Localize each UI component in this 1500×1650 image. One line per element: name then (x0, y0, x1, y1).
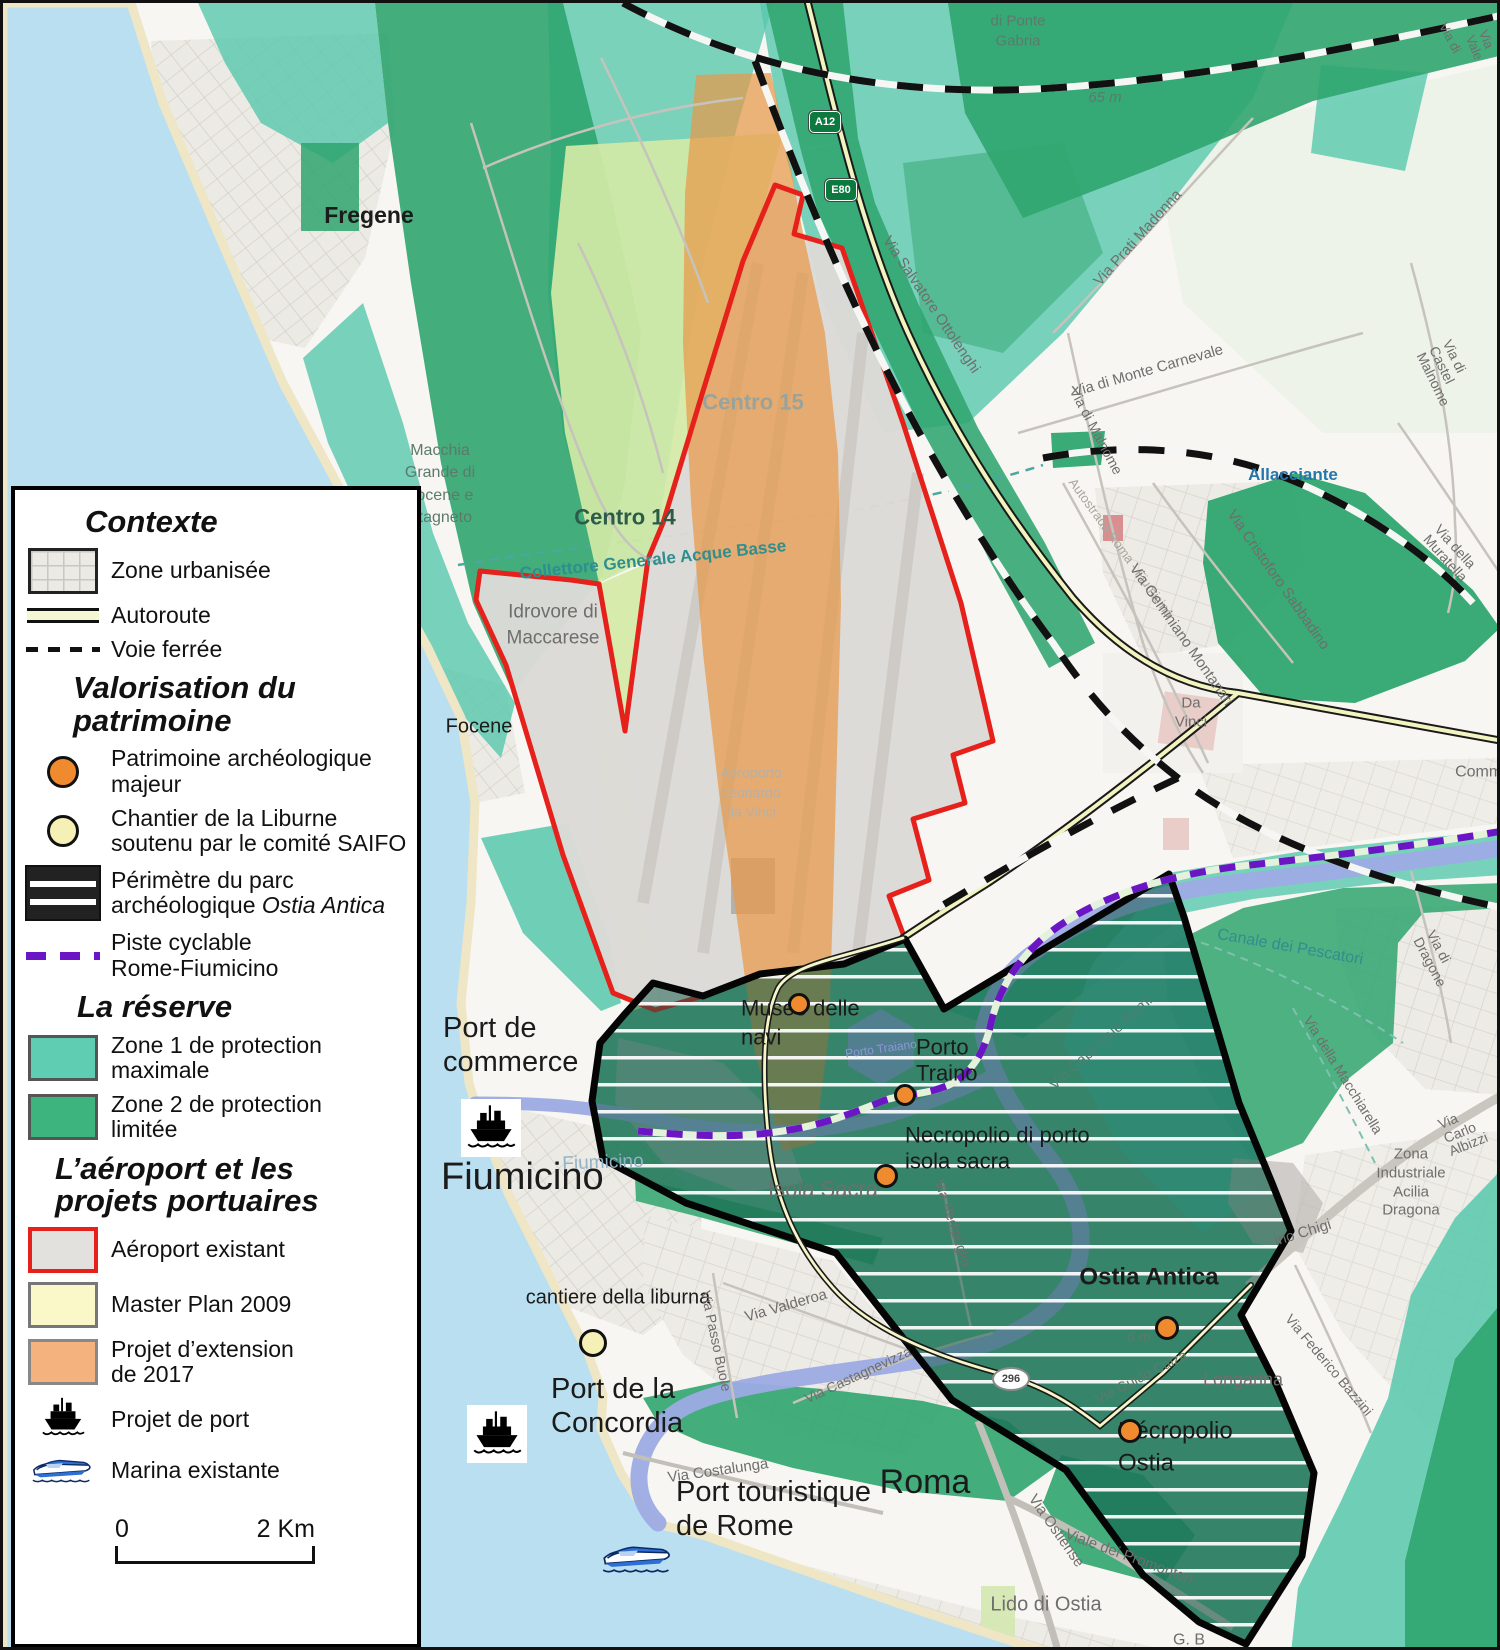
legend-item: Aéroport existant (15, 1227, 417, 1273)
park-swatch (25, 865, 101, 921)
legend-item: Patrimoine archéologique majeur (15, 746, 417, 797)
map-label: Via Prati Madonna (1091, 187, 1185, 289)
legend-item-label: Autoroute (111, 603, 211, 628)
map-label: Via di Castel Malnome (1414, 337, 1479, 408)
map-label: Roma (880, 1465, 971, 1501)
marker-cantiere-liburna (579, 1329, 607, 1357)
map-label: Via della Macchiarella (1301, 1013, 1385, 1136)
map-label: Da Vinci (1175, 694, 1207, 732)
map-label: Canale dei Pescatori (1216, 927, 1364, 969)
scale-bar: 0 2 Km (115, 1515, 315, 1564)
legend-item-label: Projet de port (111, 1407, 249, 1432)
legend-section-title: Valorisation du patrimoine (73, 672, 417, 737)
map-label: G. B (1173, 1633, 1205, 1650)
map-label: Via Vale (1464, 28, 1499, 61)
map-label: Via Federico Bazzini (1282, 1311, 1375, 1418)
legend-item: Autoroute (15, 603, 417, 628)
zone2-swatch (28, 1094, 98, 1140)
legend-item-label: Piste cyclable Rome-Fiumicino (111, 930, 278, 981)
map-label: di Ponte Gabria (990, 12, 1045, 51)
map-label: Via Salvatore Ottolenghi (879, 234, 982, 377)
scale-zero: 0 (115, 1515, 129, 1544)
legend-item-label: Projet d’extension de 2017 (111, 1337, 294, 1388)
map-label: Via di Dragone (1411, 928, 1467, 998)
map-label: Port de commerce (443, 1011, 578, 1079)
map-label: Fiumicino (441, 1158, 604, 1198)
map-label: Porto Traino (916, 1035, 978, 1088)
legend-item-label: Master Plan 2009 (111, 1292, 291, 1317)
scale-bracket (115, 1546, 315, 1564)
map-label: 65 m (1088, 90, 1121, 106)
legend-item: Marina existante (15, 1452, 417, 1489)
map-label: Fiumicino (562, 1152, 644, 1175)
map-label: Via Redipuglia (932, 1178, 974, 1268)
map-label: Ostia Antica (1079, 1264, 1218, 1289)
map-label: Via Geminiano Montanari (1126, 561, 1236, 708)
legend-item: Projet de port (15, 1396, 417, 1443)
map-label: Via Valderoa (743, 1287, 829, 1325)
map-label: Necropolio di porto isola sacra (905, 1123, 1090, 1176)
map-label: Isola Sacra (768, 1177, 878, 1200)
route-shield-296: 296 (992, 1367, 1030, 1391)
airport-swatch (28, 1227, 98, 1273)
marker-porto-traino (894, 1084, 916, 1106)
legend-item: Zone urbanisée (15, 548, 417, 594)
railway-swatch (26, 647, 100, 652)
map-label: cantiere della liburna (526, 1288, 711, 1309)
scale-end: 2 Km (257, 1515, 315, 1544)
map-label: Aeroporto Leonardo da Vinci (720, 764, 781, 823)
legend-item-label: Chantier de la Liburne soutenu par le co… (111, 806, 406, 857)
route-shield-A12: A12 (809, 111, 841, 133)
map-label: Porto Traiano (844, 1038, 917, 1060)
map-label: 6 m (1127, 1330, 1150, 1345)
urban-swatch (28, 548, 98, 594)
masterplan-swatch (28, 1282, 98, 1328)
marker-necropolio-di-porto (874, 1164, 898, 1188)
map-label: Fregene (324, 203, 413, 227)
map-label: Via Carlo Albizzi (1436, 1103, 1490, 1159)
map-label: Via Passo Buole (698, 1289, 734, 1392)
map-label: Centro 15 (702, 390, 803, 413)
cycle-swatch (26, 952, 100, 960)
legend-panel: ContexteZone urbaniséeAutorouteVoie ferr… (11, 486, 421, 1648)
legend-item: Projet d’extension de 2017 (15, 1337, 417, 1388)
legend-item-label: Patrimoine archéologique majeur (111, 746, 372, 797)
map-label: Allacciante (1248, 466, 1338, 484)
legend-item: Zone 1 de protection maximale (15, 1033, 417, 1084)
map-label: Collettore Generale Acque Basse (519, 537, 787, 583)
map-label: Idrovore di Maccarese (507, 599, 600, 650)
legend-item-label: Marina existante (111, 1458, 280, 1483)
legend-item-label: Aéroport existant (111, 1237, 285, 1262)
marker-ostia-antica (1155, 1316, 1179, 1340)
map-label: Via Capo Due Rami (1047, 993, 1156, 1093)
map-label: Port touristique de Rome (676, 1475, 871, 1543)
legend-section-title: La réserve (77, 991, 417, 1024)
map-label: Commercio (1455, 765, 1500, 782)
marker-museo-delle-navi (788, 993, 810, 1015)
legend-item: Piste cyclable Rome-Fiumicino (15, 930, 417, 981)
map-label: Via Costalunga (667, 1456, 770, 1486)
map-label: Via Cristoforo Sabbadino (1224, 507, 1332, 652)
legend-item-label: Zone 1 de protection maximale (111, 1033, 322, 1084)
dot-orange-swatch (47, 756, 79, 788)
legend-item: Périmètre du parc archéologique Ostia An… (15, 865, 417, 921)
legend-item: Master Plan 2009 (15, 1282, 417, 1328)
highway-swatch (27, 608, 99, 623)
map-label: ino Chigi (1273, 1217, 1333, 1249)
legend-section-title: Contexte (85, 506, 417, 539)
map-label: Longarina (1203, 1371, 1283, 1390)
legend-item: Chantier de la Liburne soutenu par le co… (15, 806, 417, 857)
legend-item-label: Périmètre du parc archéologique Ostia An… (111, 868, 385, 919)
map-label: Port de la Concordia (551, 1372, 683, 1440)
legend-item-label: Zone urbanisée (111, 558, 271, 583)
map-label: Via di Monte Carnevale (1071, 342, 1225, 400)
map-label: Viale dei Promontori (1063, 1527, 1195, 1588)
ship-swatch (40, 1396, 86, 1443)
dot-yellow-swatch (47, 815, 79, 847)
legend-item-label: Voie ferrée (111, 637, 222, 662)
map-label: Via della Muratella (1421, 522, 1481, 584)
map-label: Autostrada Roma - Fiumicino (1066, 476, 1176, 620)
map-label: Focene (446, 717, 513, 738)
map-screenshot: FregeneMacchia Grande di Focene e Stagne… (0, 0, 1500, 1650)
map-label: Via di (1436, 21, 1463, 56)
zone1-swatch (28, 1035, 98, 1081)
legend-section-title: L’aéroport et les projets portuaires (55, 1153, 417, 1218)
map-label: Via Guido Calza (1093, 1348, 1190, 1407)
map-label: Lido di Ostia (990, 1595, 1101, 1616)
marker-necropolio-ostia (1118, 1419, 1142, 1443)
map-label: Via di Malnome (1067, 385, 1125, 477)
map-label: Via Castagnevizza (802, 1344, 913, 1406)
map-label: Zona Industriale Acilia Dragona (1365, 1146, 1457, 1221)
legend-item: Voie ferrée (15, 637, 417, 662)
map-label: Centro 14 (574, 505, 675, 528)
map-label: Via Ostiense (1025, 1492, 1087, 1570)
marina-swatch (31, 1452, 95, 1489)
legend-item: Zone 2 de protection limitée (15, 1092, 417, 1143)
legend-item-label: Zone 2 de protection limitée (111, 1092, 322, 1143)
extension-swatch (28, 1339, 98, 1385)
route-shield-E80: E80 (825, 179, 857, 201)
